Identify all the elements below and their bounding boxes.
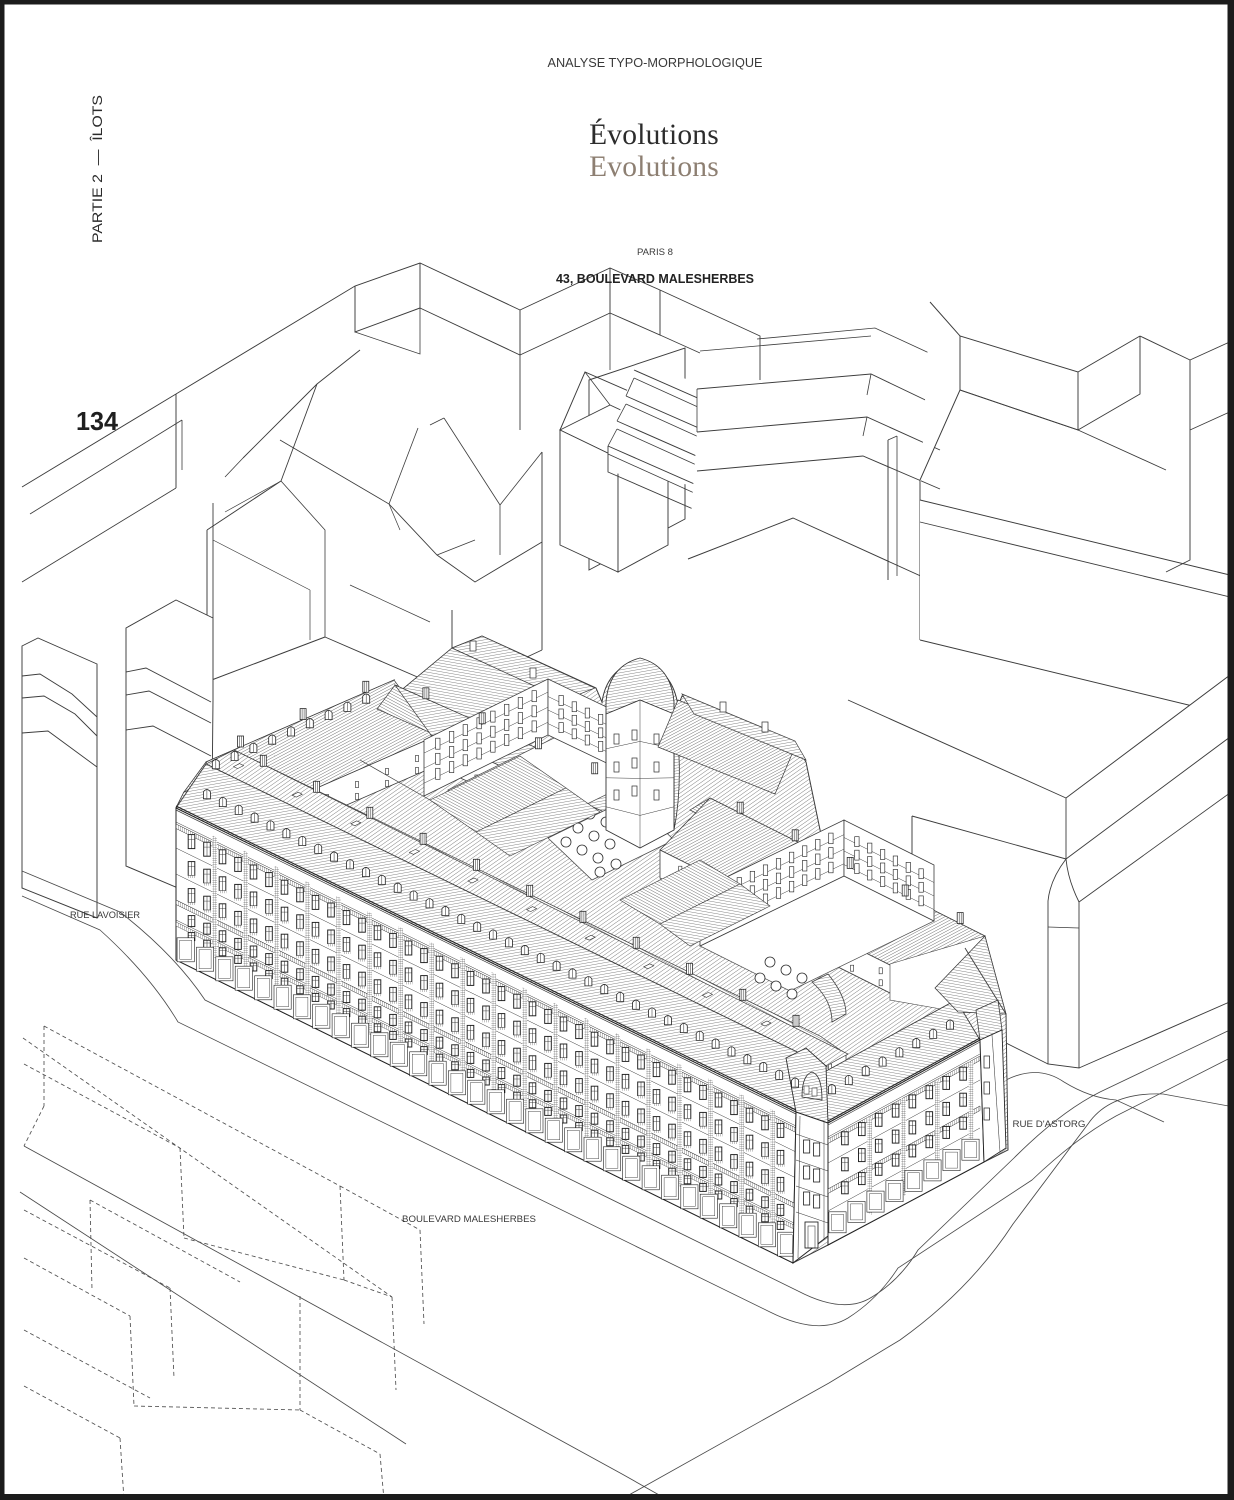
svg-text:RUE D'ASTORG: RUE D'ASTORG (1013, 1119, 1086, 1130)
svg-text:PARIS 8: PARIS 8 (637, 247, 673, 258)
svg-text:Evolutions: Evolutions (589, 151, 719, 183)
svg-text:RUE LAVOISIER: RUE LAVOISIER (70, 910, 140, 921)
svg-text:43, BOULEVARD MALESHERBES: 43, BOULEVARD MALESHERBES (556, 272, 754, 286)
svg-text:BOULEVARD MALESHERBES: BOULEVARD MALESHERBES (402, 1214, 536, 1225)
svg-text:134: 134 (76, 406, 119, 436)
svg-text:PARTIE 2 — ÎLOTS: PARTIE 2 — ÎLOTS (90, 95, 105, 243)
svg-text:ANALYSE TYPO-MORPHOLOGIQUE: ANALYSE TYPO-MORPHOLOGIQUE (548, 56, 763, 70)
svg-text:Évolutions: Évolutions (589, 118, 719, 151)
